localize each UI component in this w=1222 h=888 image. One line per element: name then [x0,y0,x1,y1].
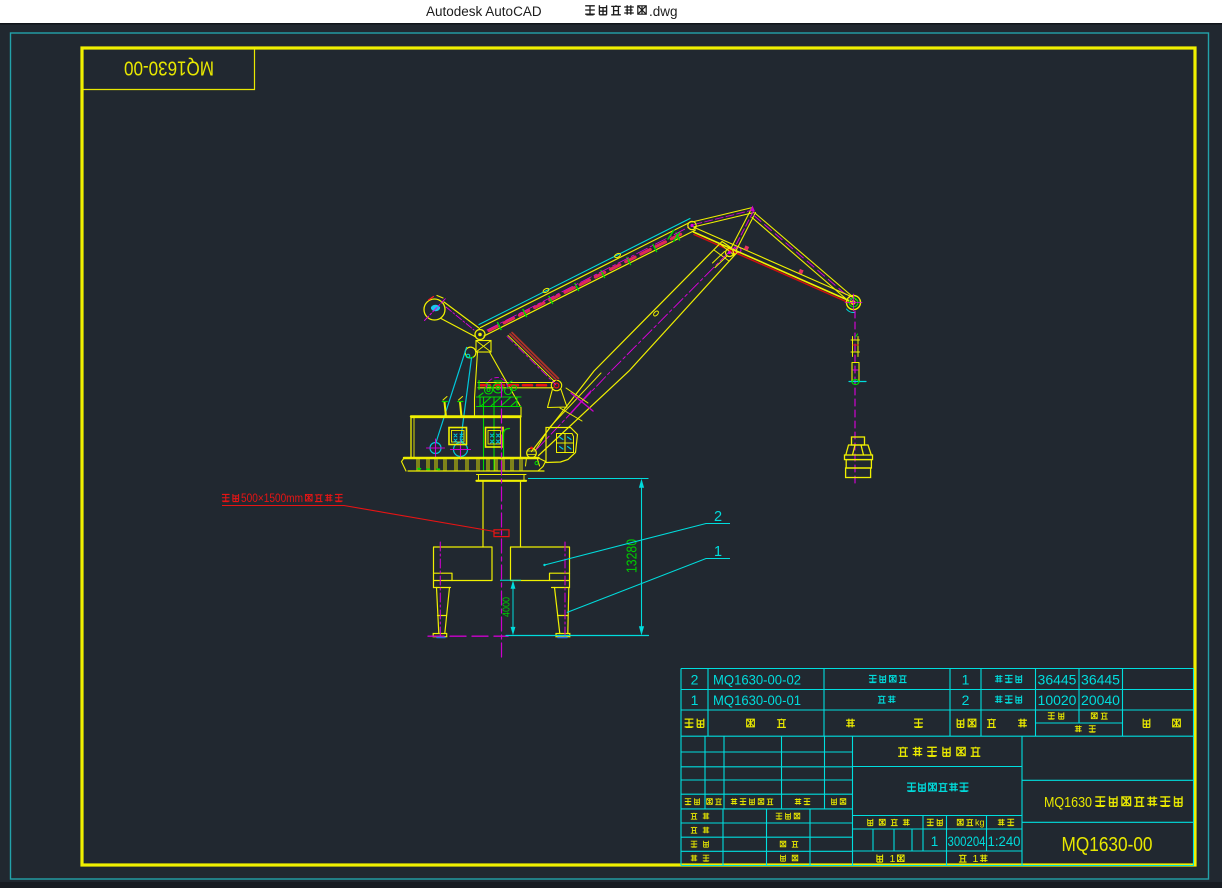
svg-text:36445: 36445 [1038,672,1077,688]
svg-text:10020: 10020 [1038,692,1077,708]
svg-text:1: 1 [890,853,896,865]
svg-text:500×1500mm: 500×1500mm [241,493,303,505]
svg-text:2: 2 [962,692,970,708]
svg-text:MQ1630-00-01: MQ1630-00-01 [713,692,801,708]
svg-text:.dwg: .dwg [649,4,678,19]
svg-text:2: 2 [691,672,699,688]
svg-text:1:240: 1:240 [988,834,1021,849]
svg-text:36445: 36445 [1081,672,1120,688]
svg-text:MQ1630-00: MQ1630-00 [1062,834,1153,856]
svg-text:2: 2 [714,509,722,525]
svg-text:1: 1 [691,692,699,708]
svg-text:20040: 20040 [1081,692,1120,708]
svg-text:4000: 4000 [501,597,513,617]
svg-text:Autodesk AutoCAD: Autodesk AutoCAD [426,4,542,19]
svg-text:300204: 300204 [948,834,986,849]
svg-text:1: 1 [931,834,939,849]
svg-text:kg: kg [975,818,985,828]
svg-text:1: 1 [973,853,979,865]
svg-text:MQ1630-00: MQ1630-00 [124,57,214,80]
svg-text:MQ1630: MQ1630 [1044,795,1092,811]
svg-text:MQ1630-00-02: MQ1630-00-02 [713,672,801,688]
svg-text:1: 1 [714,544,722,560]
svg-text:1: 1 [962,672,970,688]
